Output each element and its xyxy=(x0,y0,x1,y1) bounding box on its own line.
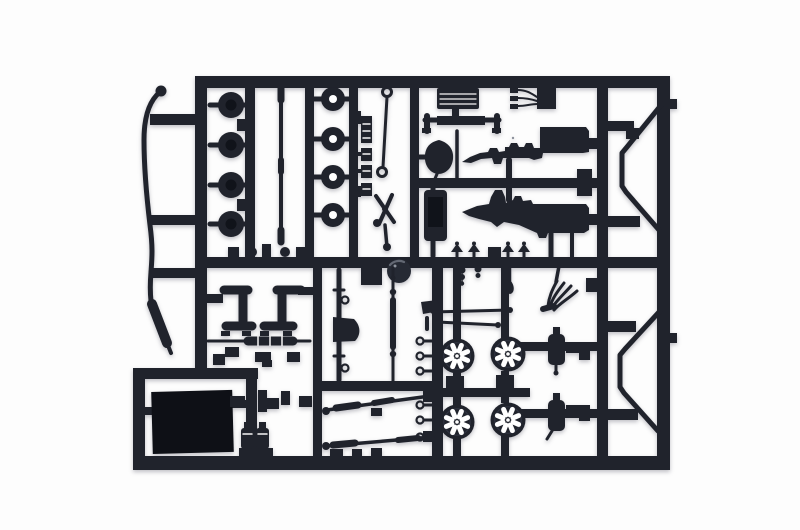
model-kit-sprue-photo xyxy=(0,0,800,530)
pulley-part xyxy=(387,259,411,283)
sprue-scene xyxy=(0,0,800,530)
